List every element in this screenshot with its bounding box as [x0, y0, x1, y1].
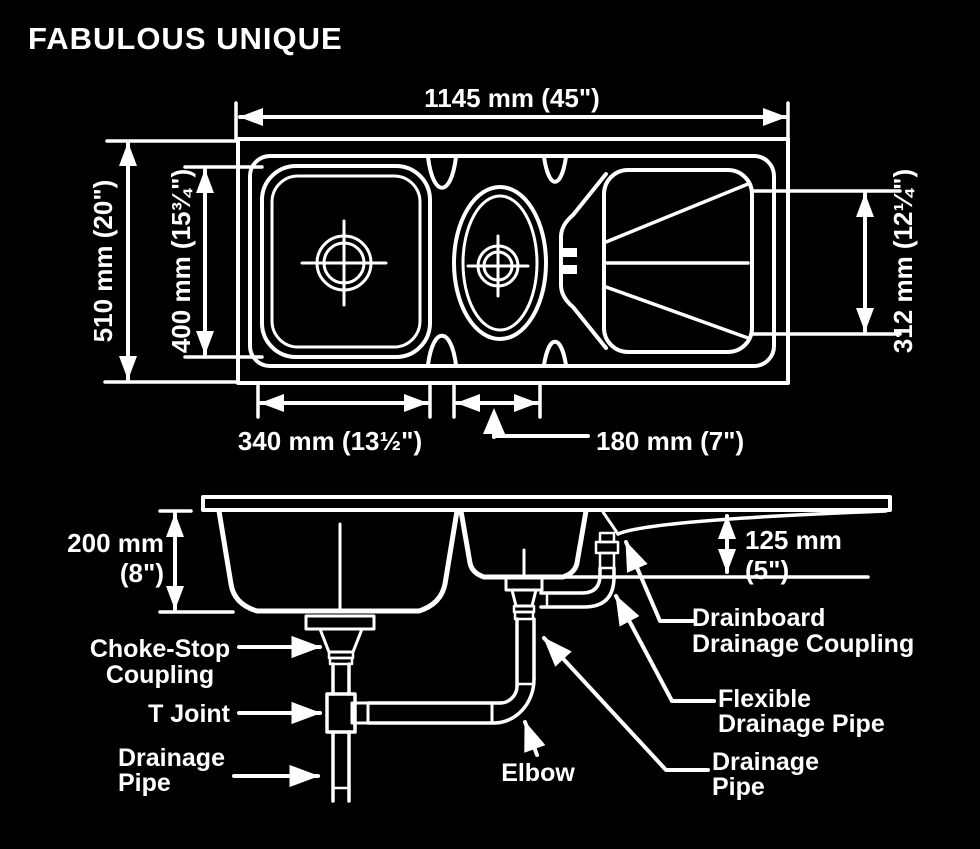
drainboard-ribs — [606, 184, 748, 338]
dim-main-depth-inches: (8") — [120, 558, 164, 588]
diagram-svg: FABULOUS UNIQUE — [0, 0, 980, 849]
drainboard-funnel — [561, 174, 606, 348]
leader-drainboard-coupling — [626, 542, 694, 621]
main-bowl-section — [219, 511, 457, 611]
choke-stop-coupling — [306, 616, 374, 664]
dim-bowl-length: 400 mm (15¾") — [166, 169, 196, 353]
dim-second-bowl-width: 180 mm (7") — [596, 426, 744, 456]
label-t-joint: T Joint — [148, 700, 231, 728]
label-drainage-pipe-right-1: Drainage — [712, 748, 819, 776]
leader-elbow — [525, 722, 537, 755]
drainboard-edge — [603, 512, 618, 534]
dim-width-overall: 1145 mm (45") — [424, 83, 600, 113]
flexible-drainage-pipe — [541, 568, 614, 607]
elbow-fitting — [494, 679, 534, 723]
dim-main-depth-value: 200 mm — [67, 528, 164, 558]
leader-line — [494, 430, 588, 437]
second-bowl-tailpipe — [517, 619, 534, 686]
label-drainboard-coupling-1: Drainboard — [692, 604, 825, 632]
second-bowl-drain — [468, 236, 528, 296]
label-drainage-pipe-left-1: Drainage — [118, 744, 225, 772]
divider-curve — [428, 157, 456, 188]
drain-slot — [562, 265, 577, 274]
drain-slot — [562, 248, 577, 257]
dim-drainboard-length: 312 mm (12¼") — [888, 169, 918, 353]
page-title: FABULOUS UNIQUE — [28, 21, 343, 56]
label-choke-stop-1: Choke-Stop — [90, 635, 230, 663]
top-view — [238, 139, 788, 383]
label-elbow: Elbow — [501, 759, 575, 787]
drainage-pipe-vertical — [333, 732, 349, 801]
label-drainage-pipe-left-2: Pipe — [118, 769, 171, 797]
dim-small-depth-value: 125 mm — [745, 525, 842, 555]
second-bowl-inner — [463, 196, 537, 330]
leader-drainage-pipe-right — [544, 638, 708, 770]
drainboard-drainage-coupling — [596, 533, 618, 568]
horizontal-pipe — [368, 703, 500, 723]
countertop-rim — [203, 497, 890, 510]
sink-spec-diagram: FABULOUS UNIQUE — [0, 0, 980, 849]
label-drainboard-coupling-2: Drainage Coupling — [692, 630, 914, 658]
label-flexible-pipe-2: Drainage Pipe — [718, 710, 885, 738]
second-bowl-outline — [454, 187, 546, 339]
divider-curve — [544, 157, 566, 182]
main-bowl-drain — [302, 221, 386, 305]
side-view-callouts: Choke-Stop Coupling T Joint Drainage Pip… — [90, 542, 914, 801]
divider-curve — [428, 336, 456, 365]
label-choke-stop-2: Coupling — [106, 661, 214, 689]
dim-small-depth-inches: (5") — [745, 555, 789, 585]
label-drainage-pipe-right-2: Pipe — [712, 773, 765, 801]
dim-depth-overall: 510 mm (20") — [88, 180, 118, 343]
second-bowl-coupling — [506, 577, 542, 619]
label-flexible-pipe-1: Flexible — [718, 685, 811, 713]
drain-tailpiece — [333, 664, 349, 694]
dim-main-bowl-width: 340 mm (13½") — [238, 426, 422, 456]
divider-curve — [544, 342, 566, 365]
drainboard-outline — [604, 170, 752, 352]
